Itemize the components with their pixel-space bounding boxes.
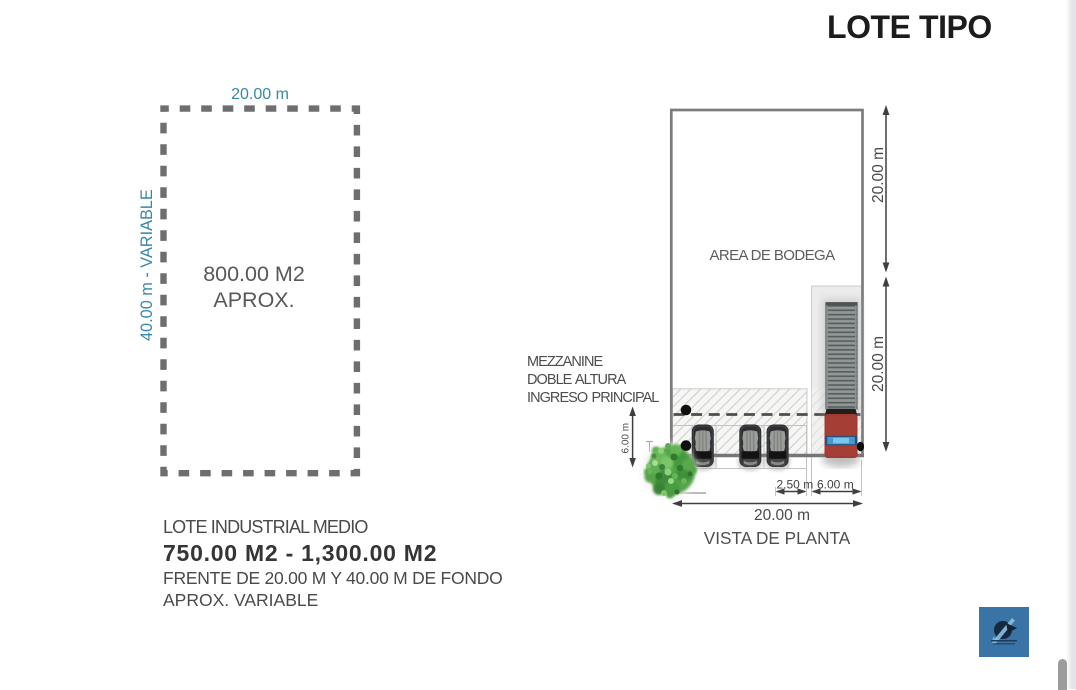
svg-text:20.00 m: 20.00 m	[870, 147, 887, 203]
svg-text:20.00 m: 20.00 m	[870, 336, 887, 392]
svg-text:6.00 m: 6.00 m	[817, 478, 854, 492]
svg-text:6.00 m: 6.00 m	[621, 423, 632, 454]
